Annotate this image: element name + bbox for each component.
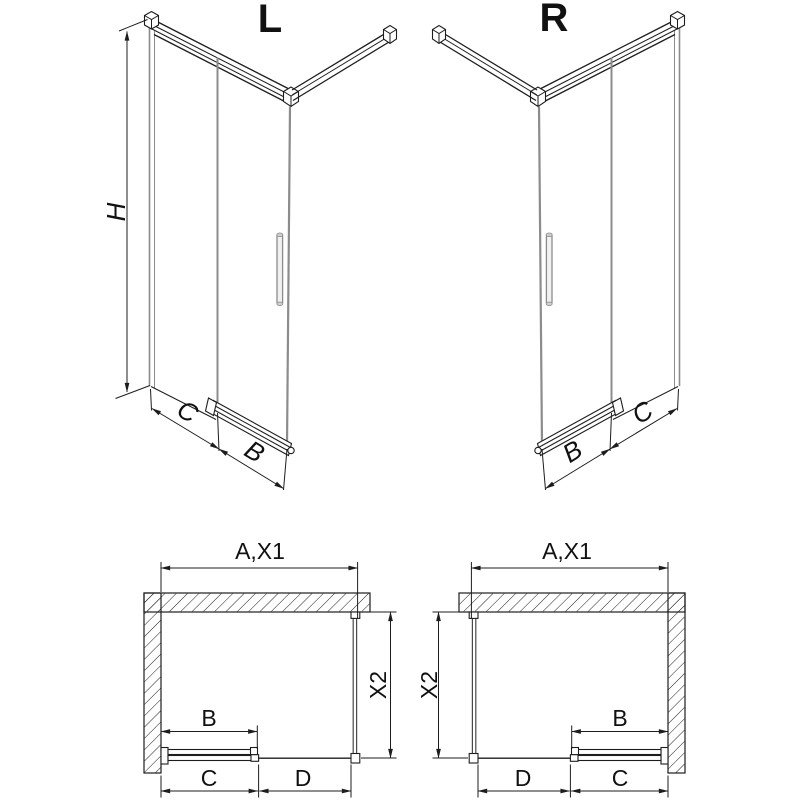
iso-left-figure: L H C B [101, 0, 397, 490]
dim-label-fixedzone-planL: D [295, 765, 312, 791]
dim-label-fixedzone-planR: D [515, 765, 532, 791]
dim-label-door-planR: B [612, 705, 627, 731]
dim-label-door-left: B [239, 434, 269, 469]
dim-label-depth-planR: X2 [416, 671, 442, 699]
dim-label-panel-right: C [626, 395, 658, 431]
plan-left-figure: A,X1 X2 B C D [144, 538, 397, 798]
dim-label-depth-planL: X2 [365, 671, 391, 699]
dim-label-width-planL: A,X1 [235, 538, 285, 564]
plan-right-figure: A,X1 X2 B D C [416, 538, 685, 798]
shower-enclosure-dimensions-diagram: L H C B R C B A,X1 X2 B C D A,X1 X2 B D … [0, 0, 800, 800]
dim-label-height-left: H [101, 202, 131, 221]
figure-label-left: L [258, 0, 282, 41]
iso-right-figure: R C B [433, 0, 685, 490]
dim-label-door-planL: B [201, 705, 216, 731]
dim-label-width-planR: A,X1 [542, 538, 592, 564]
dim-label-doorzone-planR: C [612, 765, 629, 791]
figure-label-right: R [540, 0, 569, 40]
dim-label-door-right: B [557, 434, 587, 469]
dim-label-doorzone-planL: C [201, 765, 218, 791]
